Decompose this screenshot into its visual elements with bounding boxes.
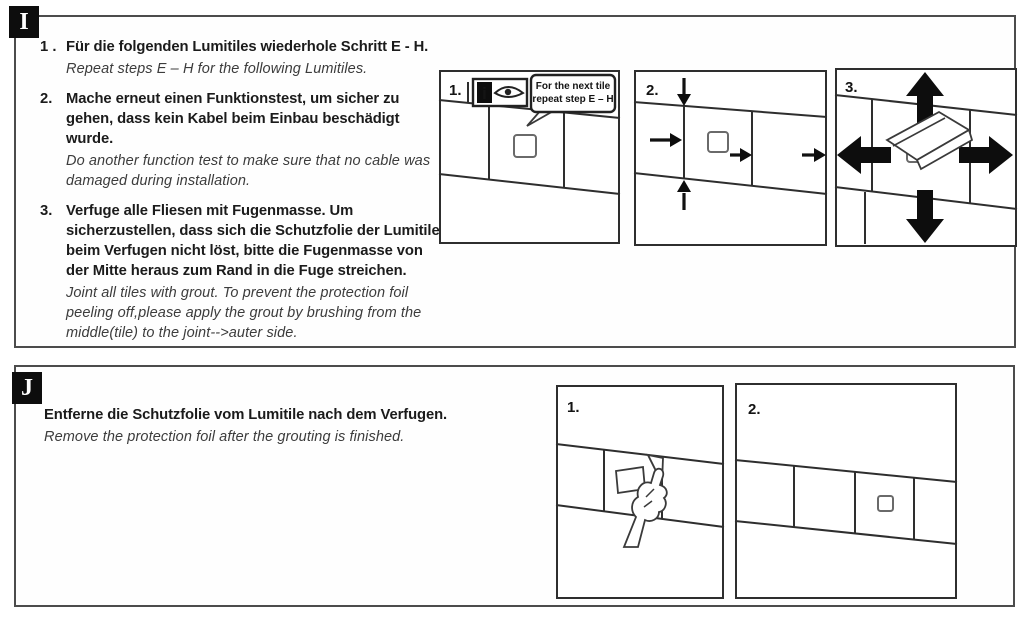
panel-number: 2.	[748, 401, 761, 418]
panel-finished-diagram: 2.	[735, 383, 957, 599]
english-text: Do another function test to make sure th…	[66, 151, 448, 191]
callout-line-2: repeat step E – H	[532, 94, 613, 105]
panel-peel-diagram: 1.	[556, 385, 724, 599]
section-j: J Entferne die Schutzfolie vom Lumitile …	[14, 365, 1015, 607]
instruction-item-3: 3. Verfuge alle Fliesen mit Fugenmasse. …	[40, 201, 448, 343]
panel-number: 1.	[449, 82, 462, 99]
item-number: 3.	[40, 201, 66, 343]
lumitile-square	[708, 132, 728, 152]
english-text: Joint all tiles with grout. To prevent t…	[66, 283, 448, 343]
section-j-instructions: Entferne die Schutzfolie vom Lumitile na…	[44, 405, 544, 447]
german-text: Für die folgenden Lumitiles wiederhole S…	[66, 37, 428, 57]
panel-frame	[736, 384, 956, 598]
instruction-item-1: 1 . Für die folgenden Lumitiles wiederho…	[40, 37, 448, 79]
lumitile-square	[878, 496, 893, 511]
german-text: Verfuge alle Fliesen mit Fugenmasse. Um …	[66, 201, 448, 281]
panel-number: 1.	[567, 399, 580, 416]
german-text: Mache erneut einen Funktionstest, um sic…	[66, 89, 448, 149]
panel-frame	[635, 71, 826, 245]
german-text: Entferne die Schutzfolie vom Lumitile na…	[44, 405, 544, 425]
panel-step3-diagram: 3.	[835, 68, 1017, 247]
section-j-badge: J	[12, 372, 42, 404]
panel-number: 3.	[845, 79, 858, 96]
english-text: Remove the protection foil after the gro…	[44, 427, 544, 447]
section-i-badge: I	[9, 6, 39, 38]
panel-step2-diagram: 2.	[634, 70, 827, 246]
item-number: 1 .	[40, 37, 66, 79]
info-icon: i	[473, 79, 527, 106]
item-number: 2.	[40, 89, 66, 191]
instruction-item-2: 2. Mache erneut einen Funktionstest, um …	[40, 89, 448, 191]
info-letter: i	[482, 84, 487, 103]
section-i: I 1 . Für die folgenden Lumitiles wieder…	[14, 15, 1016, 348]
lumitile-square	[514, 135, 536, 157]
panel-number: 2.	[646, 82, 659, 99]
instruction-sheet: I 1 . Für die folgenden Lumitiles wieder…	[0, 0, 1024, 619]
english-text: Repeat steps E – H for the following Lum…	[66, 59, 428, 79]
section-i-instructions: 1 . Für die folgenden Lumitiles wiederho…	[40, 37, 448, 353]
panel-step1-diagram: 1. i For the next tile repeat step E – H	[439, 70, 620, 244]
callout-line-1: For the next tile	[536, 81, 611, 92]
